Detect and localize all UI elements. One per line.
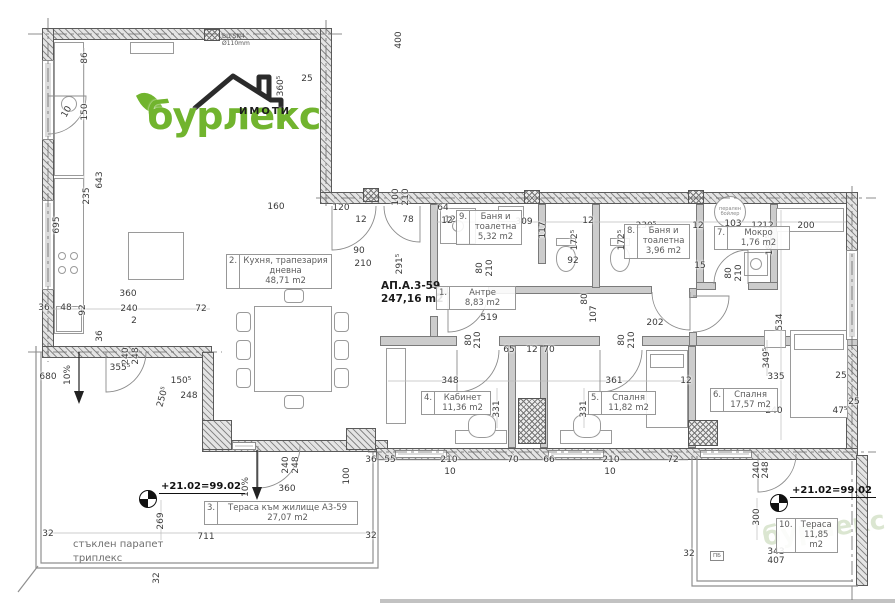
room-label: 8.Баня и тоалетна3,96 m2 (624, 224, 690, 259)
floor-plan: перален бойлер ПБ ВЦ SN4 Ø110mm +21.02=9… (0, 0, 895, 608)
elevation-marker: +21.02=99.02 (770, 494, 788, 512)
dimension: 269 (156, 512, 166, 529)
partition-wall (508, 346, 516, 448)
partition-wall (696, 282, 716, 290)
dimension: 711 (197, 532, 214, 542)
room-area: 48,71 m2 (243, 276, 328, 286)
window (700, 450, 752, 458)
room-area: 11,36 m2 (438, 403, 487, 413)
wall-pillar (202, 420, 232, 450)
room-area: 17,57 m2 (727, 400, 774, 410)
room-label: 3.Тераса към жилище А3-5927,07 m2 (204, 501, 358, 525)
dimension: 248 (291, 456, 301, 473)
dimension: 12 (582, 216, 593, 226)
dimension: 360 (278, 484, 295, 494)
dimension: 240 (120, 304, 137, 314)
window (395, 450, 447, 458)
dimension: 25 (835, 371, 846, 381)
dimension: 248 (180, 391, 197, 401)
shelf (130, 42, 174, 54)
logo-brand: бурлекс (147, 94, 320, 138)
dimension: 100 (391, 188, 401, 205)
dimension: 86 (80, 52, 90, 63)
room-name: Баня и тоалетна (473, 212, 518, 232)
dimension: 200 (797, 221, 814, 231)
dimension: 55 (384, 455, 395, 465)
dimension: 400 (394, 31, 404, 48)
washing-machine-door (750, 258, 762, 270)
agency-logo: бурлекс ИМОТИ (133, 64, 305, 146)
dimension: 355⁵ (110, 363, 131, 373)
partition-wall (380, 336, 457, 346)
dimension: 202 (646, 318, 663, 328)
dimension: 534 (775, 313, 785, 330)
dimension: 72 (195, 304, 206, 314)
slope-arrow-icon (252, 487, 262, 500)
room-number: 4. (422, 392, 435, 414)
dimension: 80 (617, 334, 627, 345)
kitchen-island (128, 232, 184, 280)
room-area: 11,82 m2 (605, 403, 652, 413)
room-name: Кухня, трапезария дневна (243, 256, 328, 276)
partition-wall (689, 332, 697, 346)
wall (42, 28, 332, 40)
room-name: Тераса към жилище А3-59 (221, 503, 354, 513)
dimension: 64 (437, 203, 448, 213)
wardrobe (386, 348, 406, 424)
logo-subtitle: ИМОТИ (239, 106, 291, 117)
dimension: 15 (694, 261, 705, 271)
parapet-note: стъклен парапет триплекс (73, 538, 163, 565)
dimension: 250⁵ (155, 386, 170, 409)
dimension: 117 (538, 221, 548, 238)
window (232, 442, 256, 450)
slope-arrow-icon (74, 391, 84, 404)
dimension: 92 (567, 256, 578, 266)
dimension: 643 (95, 171, 105, 188)
dimension: 80 (580, 293, 590, 304)
dimension: 100 (342, 467, 352, 484)
dimension: 235 (82, 187, 92, 204)
chair (334, 368, 349, 388)
room-name: Спалня (605, 393, 652, 403)
room-name: Антре (453, 288, 512, 298)
pipe-icon (524, 190, 540, 204)
room-number: 5. (589, 392, 602, 414)
dimension: 291⁵ (395, 254, 405, 275)
dimension: 65 (503, 345, 514, 355)
wall-pillar (346, 428, 376, 450)
dimension: 248 (131, 347, 141, 364)
window (42, 60, 54, 140)
room-number: 3. (205, 502, 218, 524)
dimension: 48 (60, 303, 71, 313)
pillow (650, 354, 684, 368)
stove-plate (70, 266, 78, 274)
dimension: 10 (444, 467, 455, 477)
room-label: 6.Спалня17,57 m2 (710, 388, 778, 412)
chair (334, 312, 349, 332)
dimension: 92 (78, 304, 88, 315)
room-number: 6. (711, 389, 724, 411)
shaft (518, 398, 546, 444)
dimension: 361 (605, 376, 622, 386)
room-name: Баня и тоалетна (641, 226, 686, 246)
room-area: 27,07 m2 (221, 513, 354, 523)
dimension: 36 (38, 303, 49, 313)
room-label: 2.Кухня, трапезария дневна48,71 m2 (226, 254, 332, 289)
dimension: 12 (355, 215, 366, 225)
room-area: 3,96 m2 (641, 246, 686, 256)
room-number: 10. (777, 519, 796, 552)
dimension: 349⁵ (762, 348, 772, 369)
desk-chair (573, 414, 601, 438)
dimension: 680 (39, 372, 56, 382)
dimension: 348 (441, 376, 458, 386)
apartment-label: АП.А.3-59 247,16 m2 (381, 280, 443, 306)
boiler-label: бойлер (721, 212, 740, 218)
dimension: 248 (761, 461, 771, 478)
dimension: 300 (752, 508, 762, 525)
apartment-area: 247,16 m2 (381, 293, 443, 306)
dimension: 32 (42, 529, 53, 539)
dimension: 80 (724, 267, 734, 278)
dimension: 210 (627, 331, 637, 348)
dimension: 78 (402, 215, 413, 225)
chair (236, 340, 251, 360)
pipe-icon (204, 29, 220, 41)
partition-wall (430, 204, 438, 288)
stove-plate (58, 252, 66, 260)
dimension: 25 (848, 397, 859, 407)
room-number: 7. (715, 227, 728, 249)
partition-wall (696, 204, 704, 290)
pipe-label: ВЦ SN4 Ø110mm (222, 34, 250, 47)
pb-label: ПБ (713, 553, 721, 559)
room-name: Спалня (727, 390, 774, 400)
dimension: 47⁵ (832, 406, 847, 416)
dimension: 80 (475, 262, 485, 273)
room-number: 9. (457, 211, 470, 244)
pb-marker: ПБ (710, 551, 724, 561)
dimension: 70 (543, 345, 554, 355)
dimension: 90 (353, 246, 364, 256)
room-label: 5.Спалня11,82 m2 (588, 391, 656, 415)
nightstand (764, 330, 786, 348)
chair (236, 312, 251, 332)
chair (284, 289, 304, 303)
drawing-edge (380, 599, 895, 603)
room-number: 2. (227, 255, 240, 288)
chair (284, 395, 304, 409)
pillow (794, 334, 844, 350)
room-area: 5,32 m2 (473, 232, 518, 242)
dimension: 32 (365, 531, 376, 541)
wall (320, 28, 332, 204)
dining-table (254, 306, 332, 392)
window (846, 250, 858, 340)
room-name: Мокро (731, 228, 786, 238)
apartment-id: АП.А.3-59 (381, 280, 443, 293)
elevation-marker-icon (139, 490, 157, 508)
window (548, 450, 604, 458)
dimension: 210 (473, 331, 483, 348)
dimension: 331 (492, 400, 502, 417)
dimension: 407 (767, 556, 784, 566)
shaft (688, 420, 718, 446)
desk-chair (468, 414, 496, 438)
dimension: 10 (604, 467, 615, 477)
dimension: 12 (692, 221, 703, 231)
room-label: 9.Баня и тоалетна5,32 m2 (456, 210, 522, 245)
dimension: 12 (441, 216, 452, 226)
dimension: 210 (354, 259, 371, 269)
room-label: 1.Антре8,83 m2 (436, 286, 516, 310)
chair (236, 368, 251, 388)
dimension: 70 (507, 455, 518, 465)
elevation-value: +21.02=99.02 (159, 481, 245, 494)
partition-wall (748, 282, 778, 290)
dimension: 32 (152, 572, 162, 583)
dimension: 150⁵ (171, 376, 192, 386)
dimension: 210 (440, 455, 457, 465)
stove-plate (58, 266, 66, 274)
room-name: Кабинет (438, 393, 487, 403)
dimension: 210 (602, 455, 619, 465)
room-number: 1. (437, 287, 450, 309)
room-label: 10.Тераса11,85 m2 (776, 518, 838, 553)
dimension: 160 (267, 202, 284, 212)
dimension: 335 (767, 372, 784, 382)
dimension: 10% (63, 365, 73, 385)
dimension: 12 (680, 376, 691, 386)
partition-wall (689, 288, 697, 298)
elevation-marker-icon (770, 494, 788, 512)
room-area: 8,83 m2 (453, 298, 512, 308)
dimension: 210 (485, 259, 495, 276)
dimension: 210 (734, 264, 744, 281)
dimension: 12 (526, 345, 537, 355)
dimension: 240 (281, 456, 291, 473)
elevation-marker: +21.02=99.02 (139, 490, 157, 508)
room-area: 11,85 m2 (799, 530, 834, 550)
dimension: 210 (401, 188, 411, 205)
dimension: 120 (332, 203, 349, 213)
dimension: 519 (480, 313, 497, 323)
dimension: 66 (543, 455, 554, 465)
dimension: 360 (119, 289, 136, 299)
dimension: 32 (683, 549, 694, 559)
dimension: 36 (95, 330, 105, 341)
room-label: 4.Кабинет11,36 m2 (421, 391, 491, 415)
chair (334, 340, 349, 360)
pipe-icon (363, 188, 379, 202)
pipe-icon (688, 190, 704, 204)
dimension: 107 (589, 305, 599, 322)
dimension: 172⁵ (570, 230, 580, 251)
wall (856, 455, 868, 586)
room-number: 8. (625, 225, 638, 258)
window (42, 200, 54, 290)
room-label: 7.Мокро1,76 m2 (714, 226, 790, 250)
room-name: Тераса (799, 520, 834, 530)
room-area: 1,76 m2 (731, 238, 786, 248)
dimension: 72 (667, 455, 678, 465)
elevation-value: +21.02=99.02 (790, 485, 876, 498)
dimension: 2 (131, 316, 137, 326)
stove-plate (70, 252, 78, 260)
dimension: 36 (365, 455, 376, 465)
dimension: 150 (80, 103, 90, 120)
dimension: 695 (52, 216, 62, 233)
